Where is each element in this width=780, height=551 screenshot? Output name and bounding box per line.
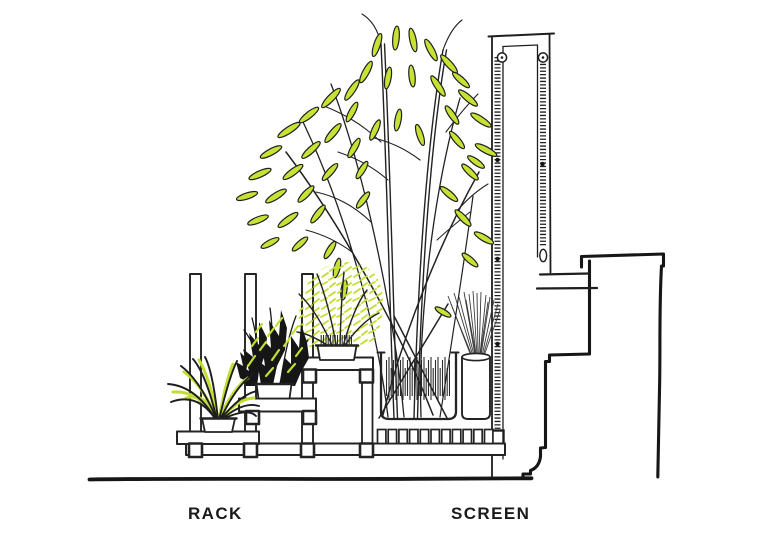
wall-right-edge [658, 266, 662, 477]
screen-right-rail-outer [550, 35, 551, 273]
screen-inner-top [503, 45, 538, 47]
screen-label: SCREEN [451, 505, 530, 523]
screen-top-cap [489, 34, 555, 37]
rack-bottom-rail [186, 444, 505, 456]
section-sketch: RACK SCREEN [0, 0, 780, 551]
rack-leg [362, 381, 373, 445]
fern-pot [257, 384, 292, 399]
wall-ledge-and-plinth [523, 354, 590, 478]
spider-pot [202, 419, 235, 433]
rack-label: RACK [188, 505, 243, 523]
grass-pot [318, 346, 357, 361]
sketch-canvas [0, 0, 780, 551]
screen-zip-loop [540, 249, 547, 261]
ground-line [90, 478, 532, 479]
rack-shelf-low [177, 432, 259, 445]
grate-bench [378, 430, 493, 444]
wall-coping [582, 254, 664, 267]
